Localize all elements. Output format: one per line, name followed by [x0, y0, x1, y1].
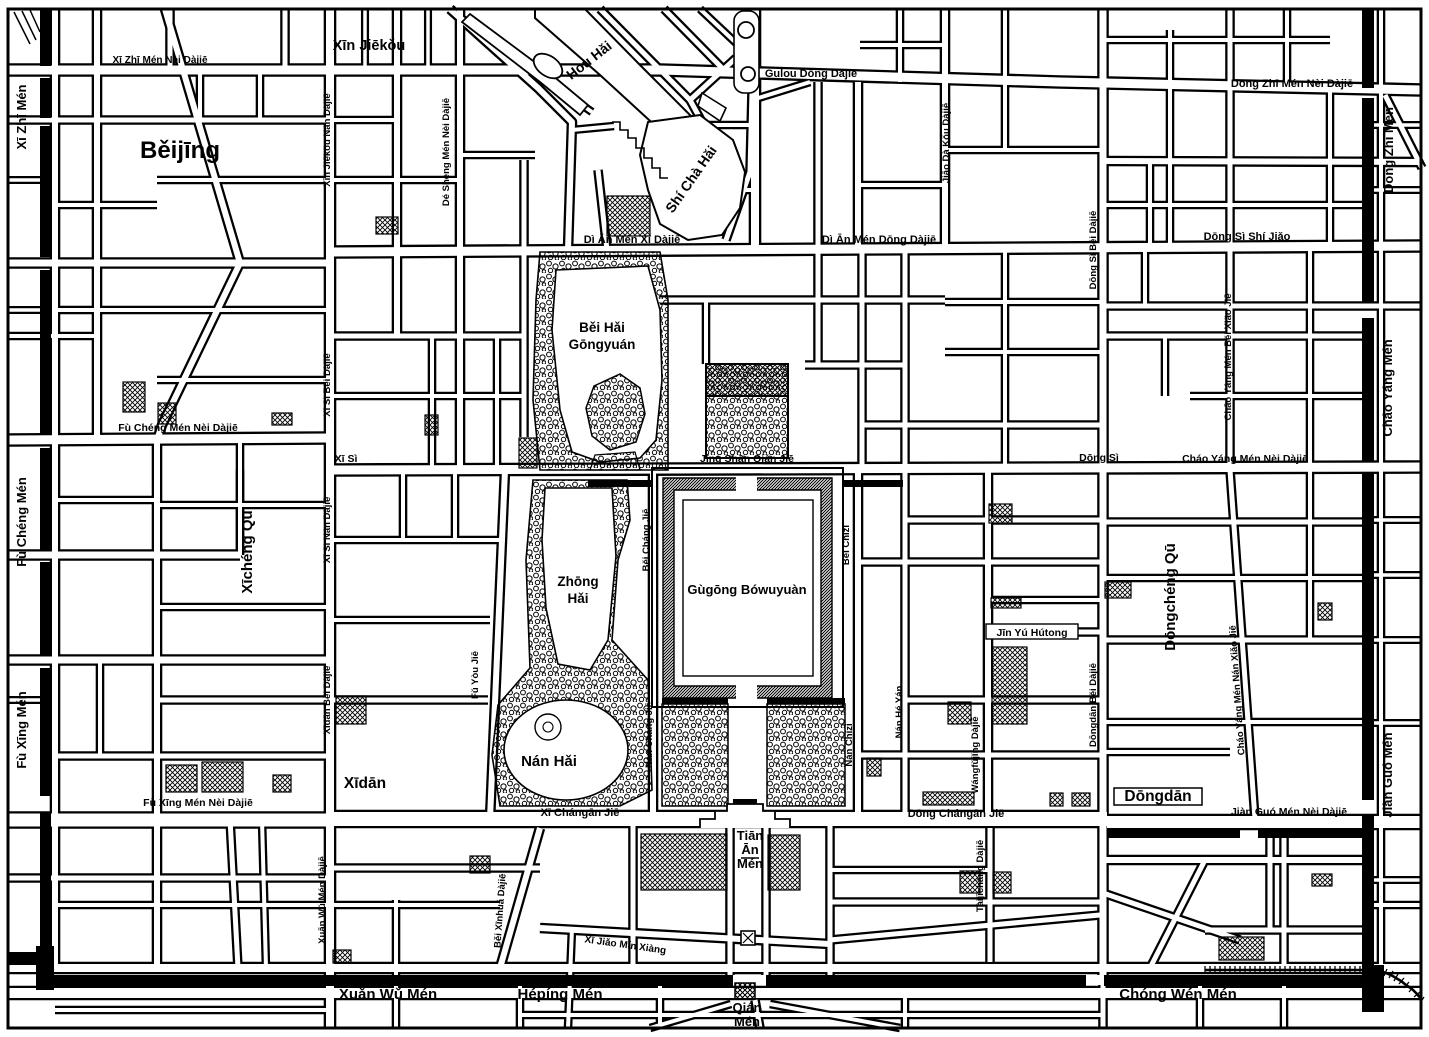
- svg-text:Fù Chéng Mén: Fù Chéng Mén: [14, 477, 29, 567]
- svg-text:Hépíng Mén: Hépíng Mén: [518, 986, 603, 1003]
- svg-text:Fù Xīng Mén Nèi Dàjiē: Fù Xīng Mén Nèi Dàjiē: [143, 797, 253, 809]
- svg-text:Jiāo Dà Kǒu Dàjiē: Jiāo Dà Kǒu Dàjiē: [941, 103, 952, 183]
- svg-text:Nán Chízi: Nán Chízi: [844, 723, 855, 766]
- svg-text:Xī Chángān Jiē: Xī Chángān Jiē: [541, 807, 620, 819]
- svg-text:Dōng Zhī Mén Nèi Dàjiē: Dōng Zhī Mén Nèi Dàjiē: [1231, 78, 1353, 90]
- svg-text:Dì Ān Mén Xī Dàjiē: Dì Ān Mén Xī Dàjiē: [584, 234, 681, 246]
- svg-text:Dōng Zhī Mén: Dōng Zhī Mén: [1381, 107, 1396, 193]
- svg-text:Xuān Wǔ Mén Dàjiē: Xuān Wǔ Mén Dàjiē: [317, 856, 328, 944]
- svg-text:Dōngdān Běi Dàjiē: Dōngdān Běi Dàjiē: [1088, 663, 1099, 747]
- svg-text:Dōng Sì: Dōng Sì: [1079, 452, 1119, 464]
- svg-text:Mén: Mén: [734, 1014, 760, 1029]
- svg-text:Běi Cháng Jiē: Běi Cháng Jiē: [641, 509, 652, 572]
- svg-text:Jǐng Shān Qián Jiē: Jǐng Shān Qián Jiē: [700, 453, 794, 465]
- svg-text:Nán Cháng Jiē: Nán Cháng Jiē: [644, 702, 655, 768]
- svg-text:Xīchéng Qū: Xīchéng Qū: [239, 510, 256, 593]
- svg-text:Hǎi: Hǎi: [567, 591, 588, 606]
- svg-text:Tiān: Tiān: [737, 828, 764, 843]
- svg-text:Xī Zhī Mén: Xī Zhī Mén: [14, 84, 29, 149]
- svg-text:Dōngchéng Qū: Dōngchéng Qū: [1162, 543, 1179, 651]
- svg-text:Gōngyuán: Gōngyuán: [569, 337, 636, 352]
- svg-text:Dōng Sì Běi Dàjiē: Dōng Sì Běi Dàjiē: [1088, 211, 1099, 290]
- svg-text:Qián: Qián: [733, 1000, 762, 1015]
- svg-text:Xīn Jiēkǒu: Xīn Jiēkǒu: [333, 38, 406, 54]
- svg-text:Běi Chízi: Běi Chízi: [841, 525, 852, 565]
- svg-text:Běi Hǎi: Běi Hǎi: [579, 320, 625, 335]
- svg-text:Xī Sì Nán Dàjiē: Xī Sì Nán Dàjiē: [322, 497, 333, 564]
- svg-text:Fù Xīng Mén: Fù Xīng Mén: [14, 691, 29, 768]
- svg-text:Dōng Sì Shí Jiǎo: Dōng Sì Shí Jiǎo: [1204, 231, 1291, 243]
- svg-text:Xīdān: Xīdān: [344, 775, 386, 792]
- svg-text:Xī Zhī Mén Nèi Dàjiē: Xī Zhī Mén Nèi Dàjiē: [112, 55, 207, 66]
- svg-text:Dōng Chángān Jiē: Dōng Chángān Jiē: [908, 808, 1005, 820]
- svg-text:Nán Hé Yán: Nán Hé Yán: [894, 685, 905, 738]
- svg-text:Fǔ Yòu Jiē: Fǔ Yòu Jiē: [470, 651, 481, 699]
- svg-text:Gulou Dōng Dàjiē: Gulou Dōng Dàjiē: [765, 68, 857, 80]
- svg-text:Xī Sì Běi Dàjiē: Xī Sì Běi Dàjiē: [322, 353, 333, 416]
- svg-text:Dé Shèng Mén Nèi Dàjiē: Dé Shèng Mén Nèi Dàjiē: [441, 98, 452, 206]
- svg-text:Xīn Jiēkǒu Nán Dàjiē: Xīn Jiēkǒu Nán Dàjiē: [322, 93, 333, 186]
- svg-text:Dōngdān: Dōngdān: [1124, 788, 1191, 805]
- svg-text:Jiàn Guó Mén: Jiàn Guó Mén: [1380, 732, 1395, 817]
- svg-text:Jīn Yú Hútong: Jīn Yú Hútong: [997, 627, 1068, 639]
- svg-text:Wángfǔjǐng Dàjiē: Wángfǔjǐng Dàjiē: [970, 716, 981, 793]
- svg-text:Cháo Yáng Mén Nèi Dàjiē: Cháo Yáng Mén Nèi Dàjiē: [1182, 453, 1308, 465]
- svg-text:Chóng Wén Mén: Chóng Wén Mén: [1119, 986, 1236, 1003]
- svg-text:Jiàn Guó Mén Nèi Dàjiē: Jiàn Guó Mén Nèi Dàjiē: [1231, 806, 1347, 818]
- svg-text:Cháo Yáng Mén: Cháo Yáng Mén: [1380, 339, 1395, 436]
- svg-text:Nán Hǎi: Nán Hǎi: [521, 753, 577, 770]
- svg-text:Xīdān Běi Dàjiē: Xīdān Běi Dàjiē: [322, 666, 333, 735]
- svg-text:Xuǎn Wǔ Mén: Xuǎn Wǔ Mén: [339, 986, 437, 1003]
- svg-text:Dì Ān Mén Dōng Dàjiē: Dì Ān Mén Dōng Dàjiē: [822, 234, 936, 246]
- svg-text:Ān: Ān: [741, 842, 758, 857]
- svg-text:Zhōng: Zhōng: [557, 574, 598, 589]
- svg-text:Xī Sì: Xī Sì: [335, 453, 358, 465]
- svg-text:Tàijīchǎng Dàjiē: Tàijīchǎng Dàjiē: [975, 840, 986, 912]
- svg-text:Běijīng: Běijīng: [140, 137, 220, 164]
- svg-text:Fù Chéng Mén Nèi Dàjiē: Fù Chéng Mén Nèi Dàjiē: [118, 422, 238, 434]
- svg-text:Chāo Yáng Mén Běi Xiǎo Jiē: Chāo Yáng Mén Běi Xiǎo Jiē: [1223, 293, 1234, 420]
- svg-text:Gùgōng Bówuyuàn: Gùgōng Bówuyuàn: [687, 582, 806, 597]
